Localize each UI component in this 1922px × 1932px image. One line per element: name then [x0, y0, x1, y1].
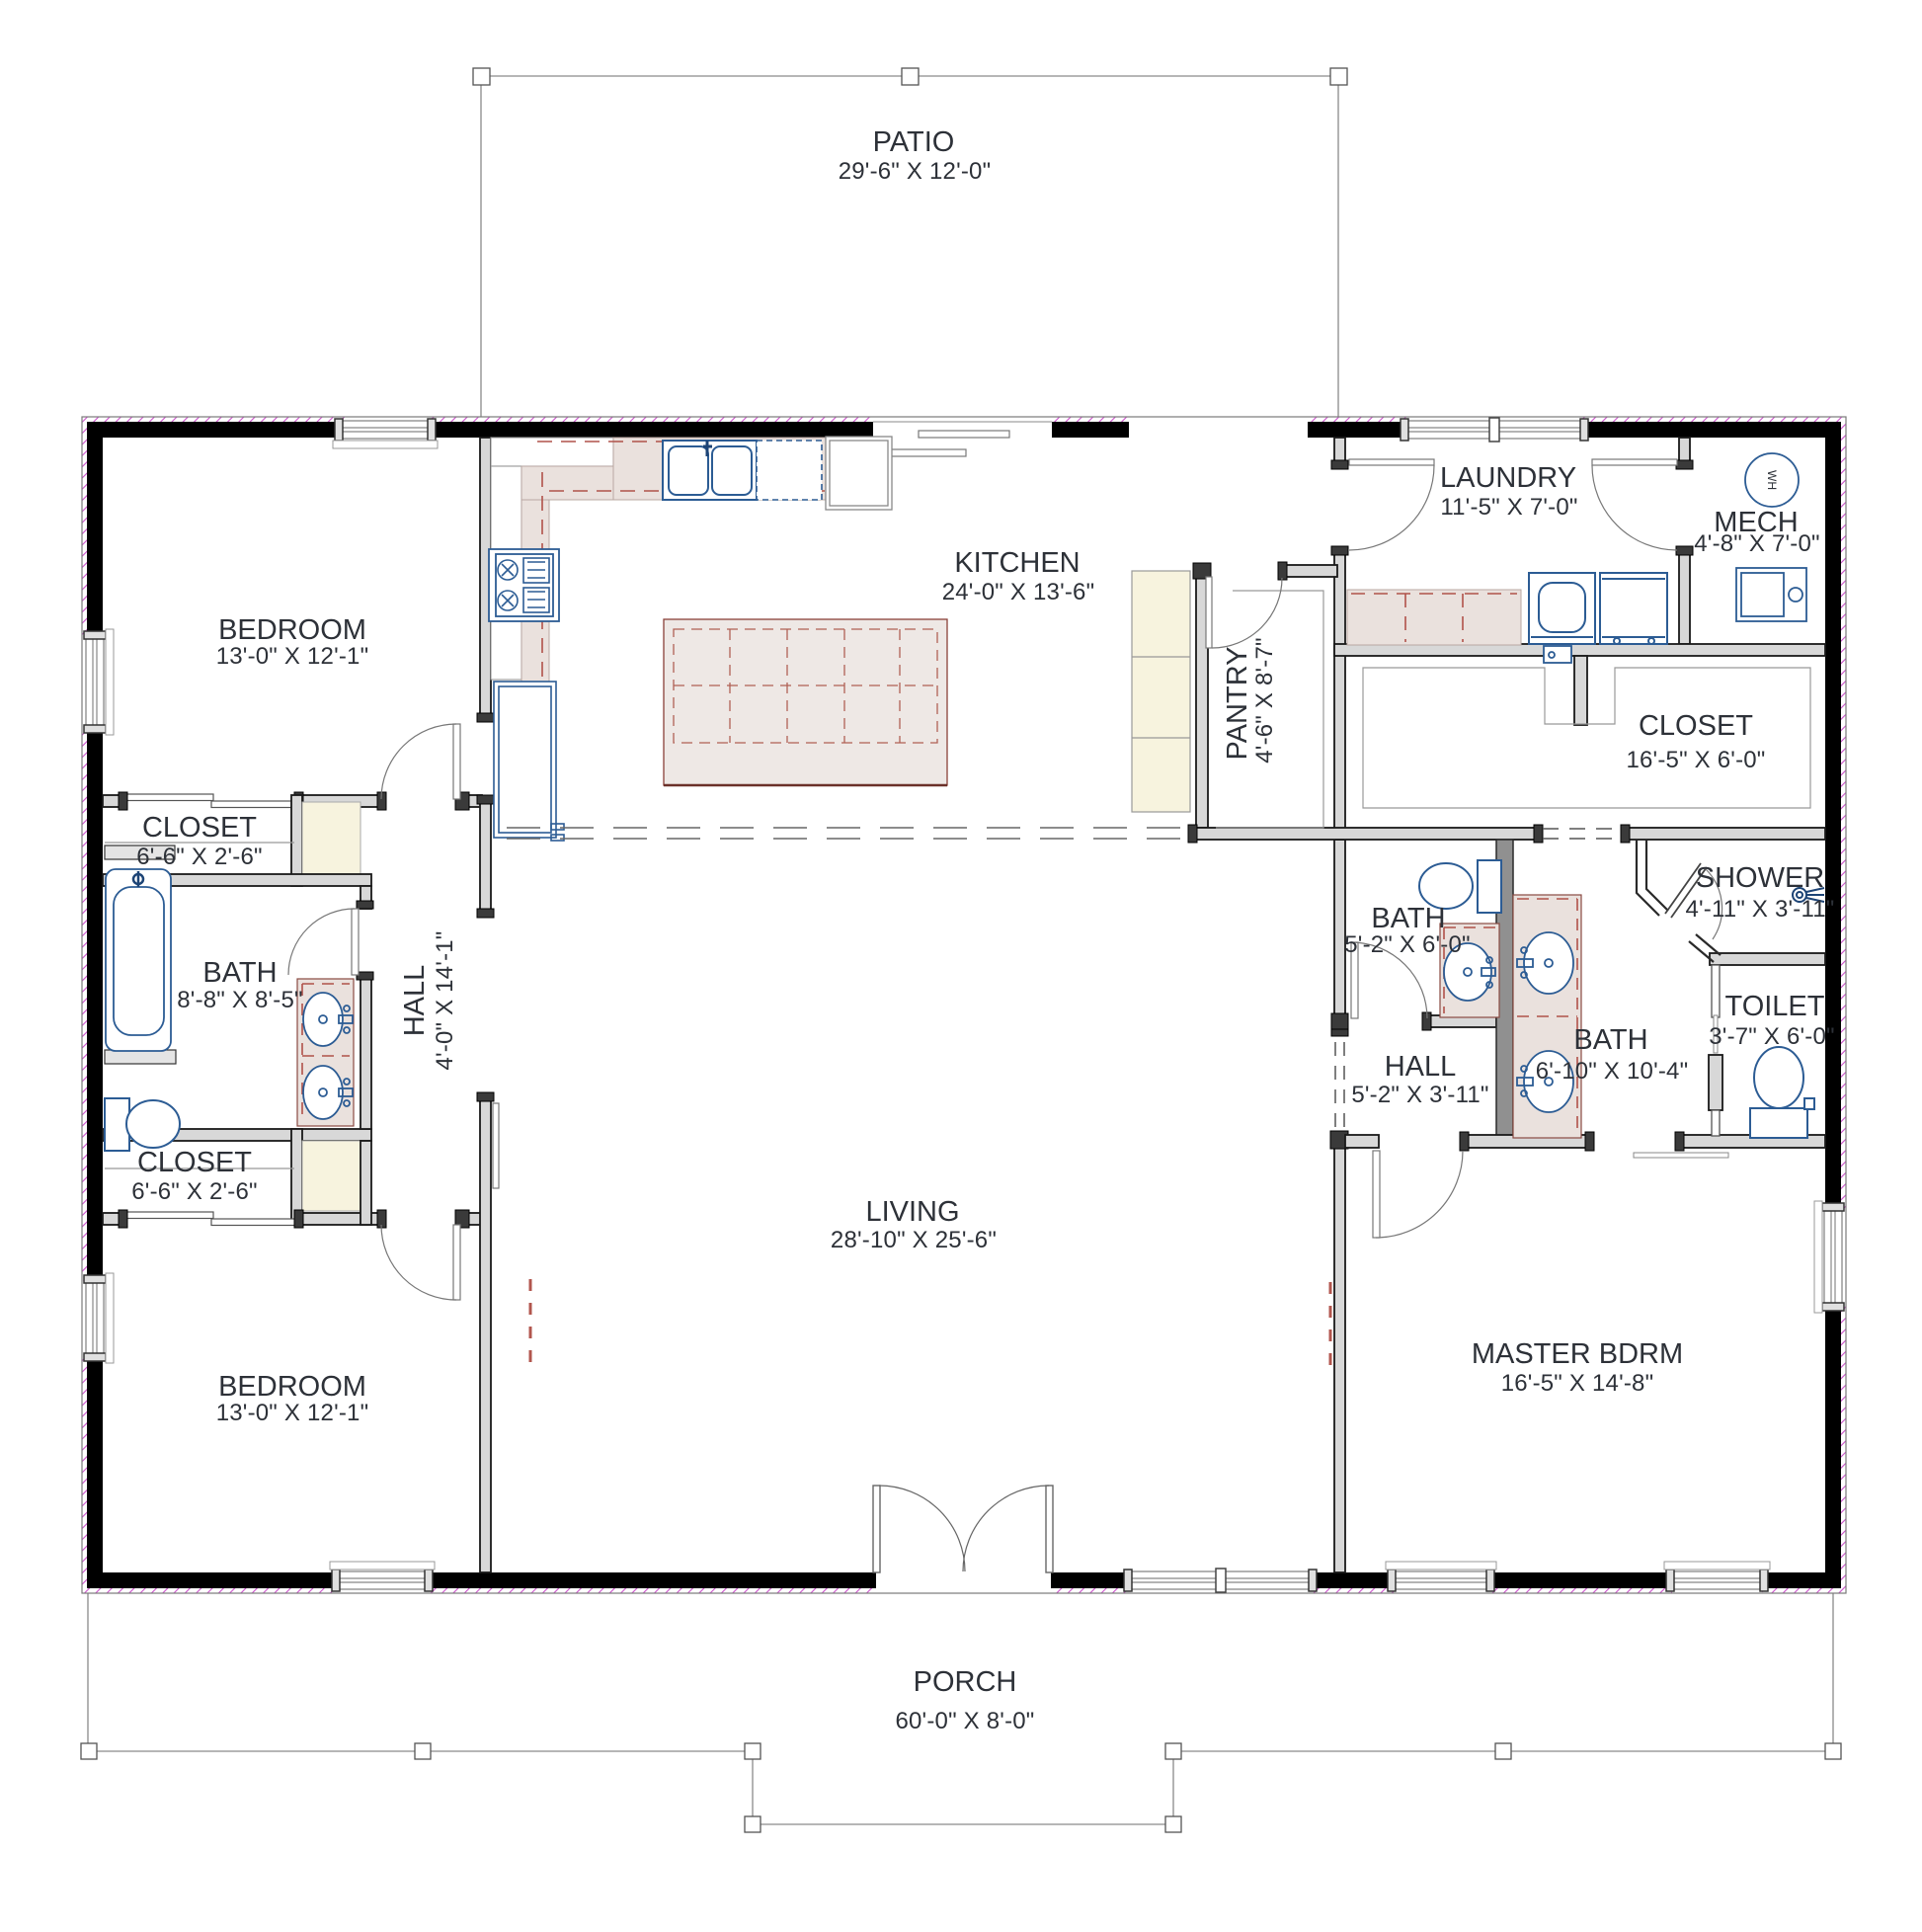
svg-text:PATIO: PATIO	[873, 126, 955, 158]
svg-text:29'-6" X 12'-0": 29'-6" X 12'-0"	[839, 158, 992, 185]
svg-text:60'-0" X 8'-0": 60'-0" X 8'-0"	[895, 1708, 1034, 1734]
svg-text:KITCHEN: KITCHEN	[954, 547, 1080, 579]
svg-text:5'-2" X 3'-11": 5'-2" X 3'-11"	[1351, 1082, 1488, 1108]
svg-text:LIVING: LIVING	[865, 1196, 959, 1228]
svg-text:3'-7" X 6'-0": 3'-7" X 6'-0"	[1709, 1023, 1835, 1050]
svg-text:TOILET: TOILET	[1725, 991, 1825, 1022]
svg-text:WH: WH	[1765, 470, 1779, 490]
svg-text:SHOWER: SHOWER	[1696, 862, 1825, 894]
svg-text:6'-6" X 2'-6": 6'-6" X 2'-6"	[131, 1178, 258, 1205]
svg-text:LAUNDRY: LAUNDRY	[1440, 462, 1576, 494]
svg-text:MASTER BDRM: MASTER BDRM	[1472, 1338, 1683, 1370]
svg-text:HALL: HALL	[399, 965, 431, 1037]
svg-text:CLOSET: CLOSET	[137, 1147, 252, 1178]
svg-text:13'-0" X 12'-1": 13'-0" X 12'-1"	[216, 643, 369, 670]
svg-text:6'-6" X 2'-6": 6'-6" X 2'-6"	[136, 844, 263, 870]
svg-text:5'-2" X 6'-0": 5'-2" X 6'-0"	[1344, 931, 1471, 958]
svg-text:8'-8" X 8'-5": 8'-8" X 8'-5"	[177, 987, 303, 1013]
svg-text:CLOSET: CLOSET	[1639, 710, 1753, 742]
svg-text:BEDROOM: BEDROOM	[218, 614, 366, 646]
svg-text:BATH: BATH	[202, 957, 277, 989]
svg-text:BATH: BATH	[1371, 903, 1445, 934]
svg-text:PORCH: PORCH	[914, 1666, 1017, 1698]
svg-text:HALL: HALL	[1385, 1051, 1457, 1083]
svg-text:BATH: BATH	[1573, 1024, 1647, 1056]
svg-text:4'-8" X 7'-0": 4'-8" X 7'-0"	[1694, 530, 1820, 557]
svg-text:11'-5" X 7'-0": 11'-5" X 7'-0"	[1440, 494, 1577, 521]
svg-text:4'-11" X 3'-11": 4'-11" X 3'-11"	[1685, 896, 1834, 923]
svg-text:16'-5" X 6'-0": 16'-5" X 6'-0"	[1626, 747, 1765, 773]
svg-text:BEDROOM: BEDROOM	[218, 1371, 366, 1403]
svg-text:4'-6" X 8'-7": 4'-6" X 8'-7"	[1251, 637, 1278, 764]
svg-text:13'-0" X 12'-1": 13'-0" X 12'-1"	[216, 1400, 369, 1426]
svg-text:6'-10" X 10'-4": 6'-10" X 10'-4"	[1536, 1058, 1689, 1085]
svg-text:24'-0" X 13'-6": 24'-0" X 13'-6"	[942, 579, 1095, 605]
svg-text:4'-0" X 14'-1": 4'-0" X 14'-1"	[432, 930, 458, 1070]
svg-text:PANTRY: PANTRY	[1222, 647, 1253, 761]
svg-text:CLOSET: CLOSET	[142, 812, 257, 844]
svg-text:28'-10" X 25'-6": 28'-10" X 25'-6"	[831, 1227, 997, 1253]
svg-text:16'-5" X 14'-8": 16'-5" X 14'-8"	[1501, 1370, 1654, 1397]
